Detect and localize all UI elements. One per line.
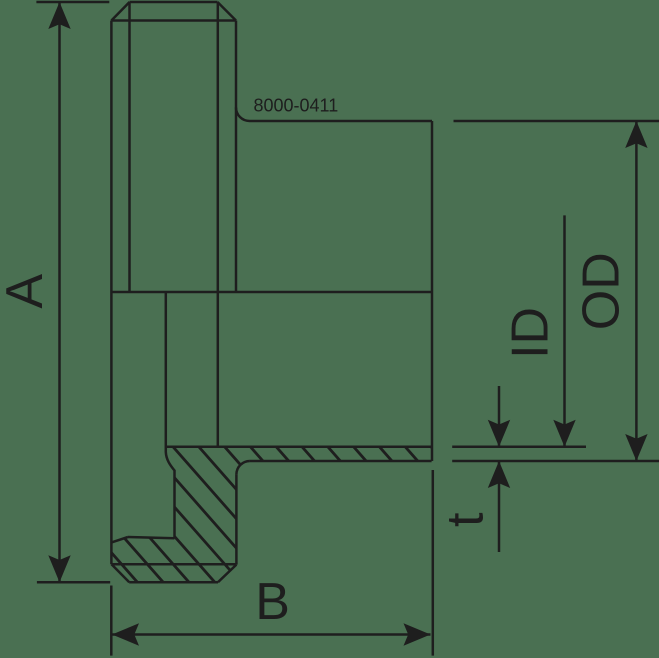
svg-text:B: B (255, 573, 290, 631)
svg-text:OD: OD (572, 252, 630, 330)
svg-text:t: t (436, 512, 494, 527)
svg-text:8000-0411: 8000-0411 (254, 96, 339, 116)
svg-text:A: A (0, 274, 54, 309)
svg-text:ID: ID (502, 307, 560, 359)
